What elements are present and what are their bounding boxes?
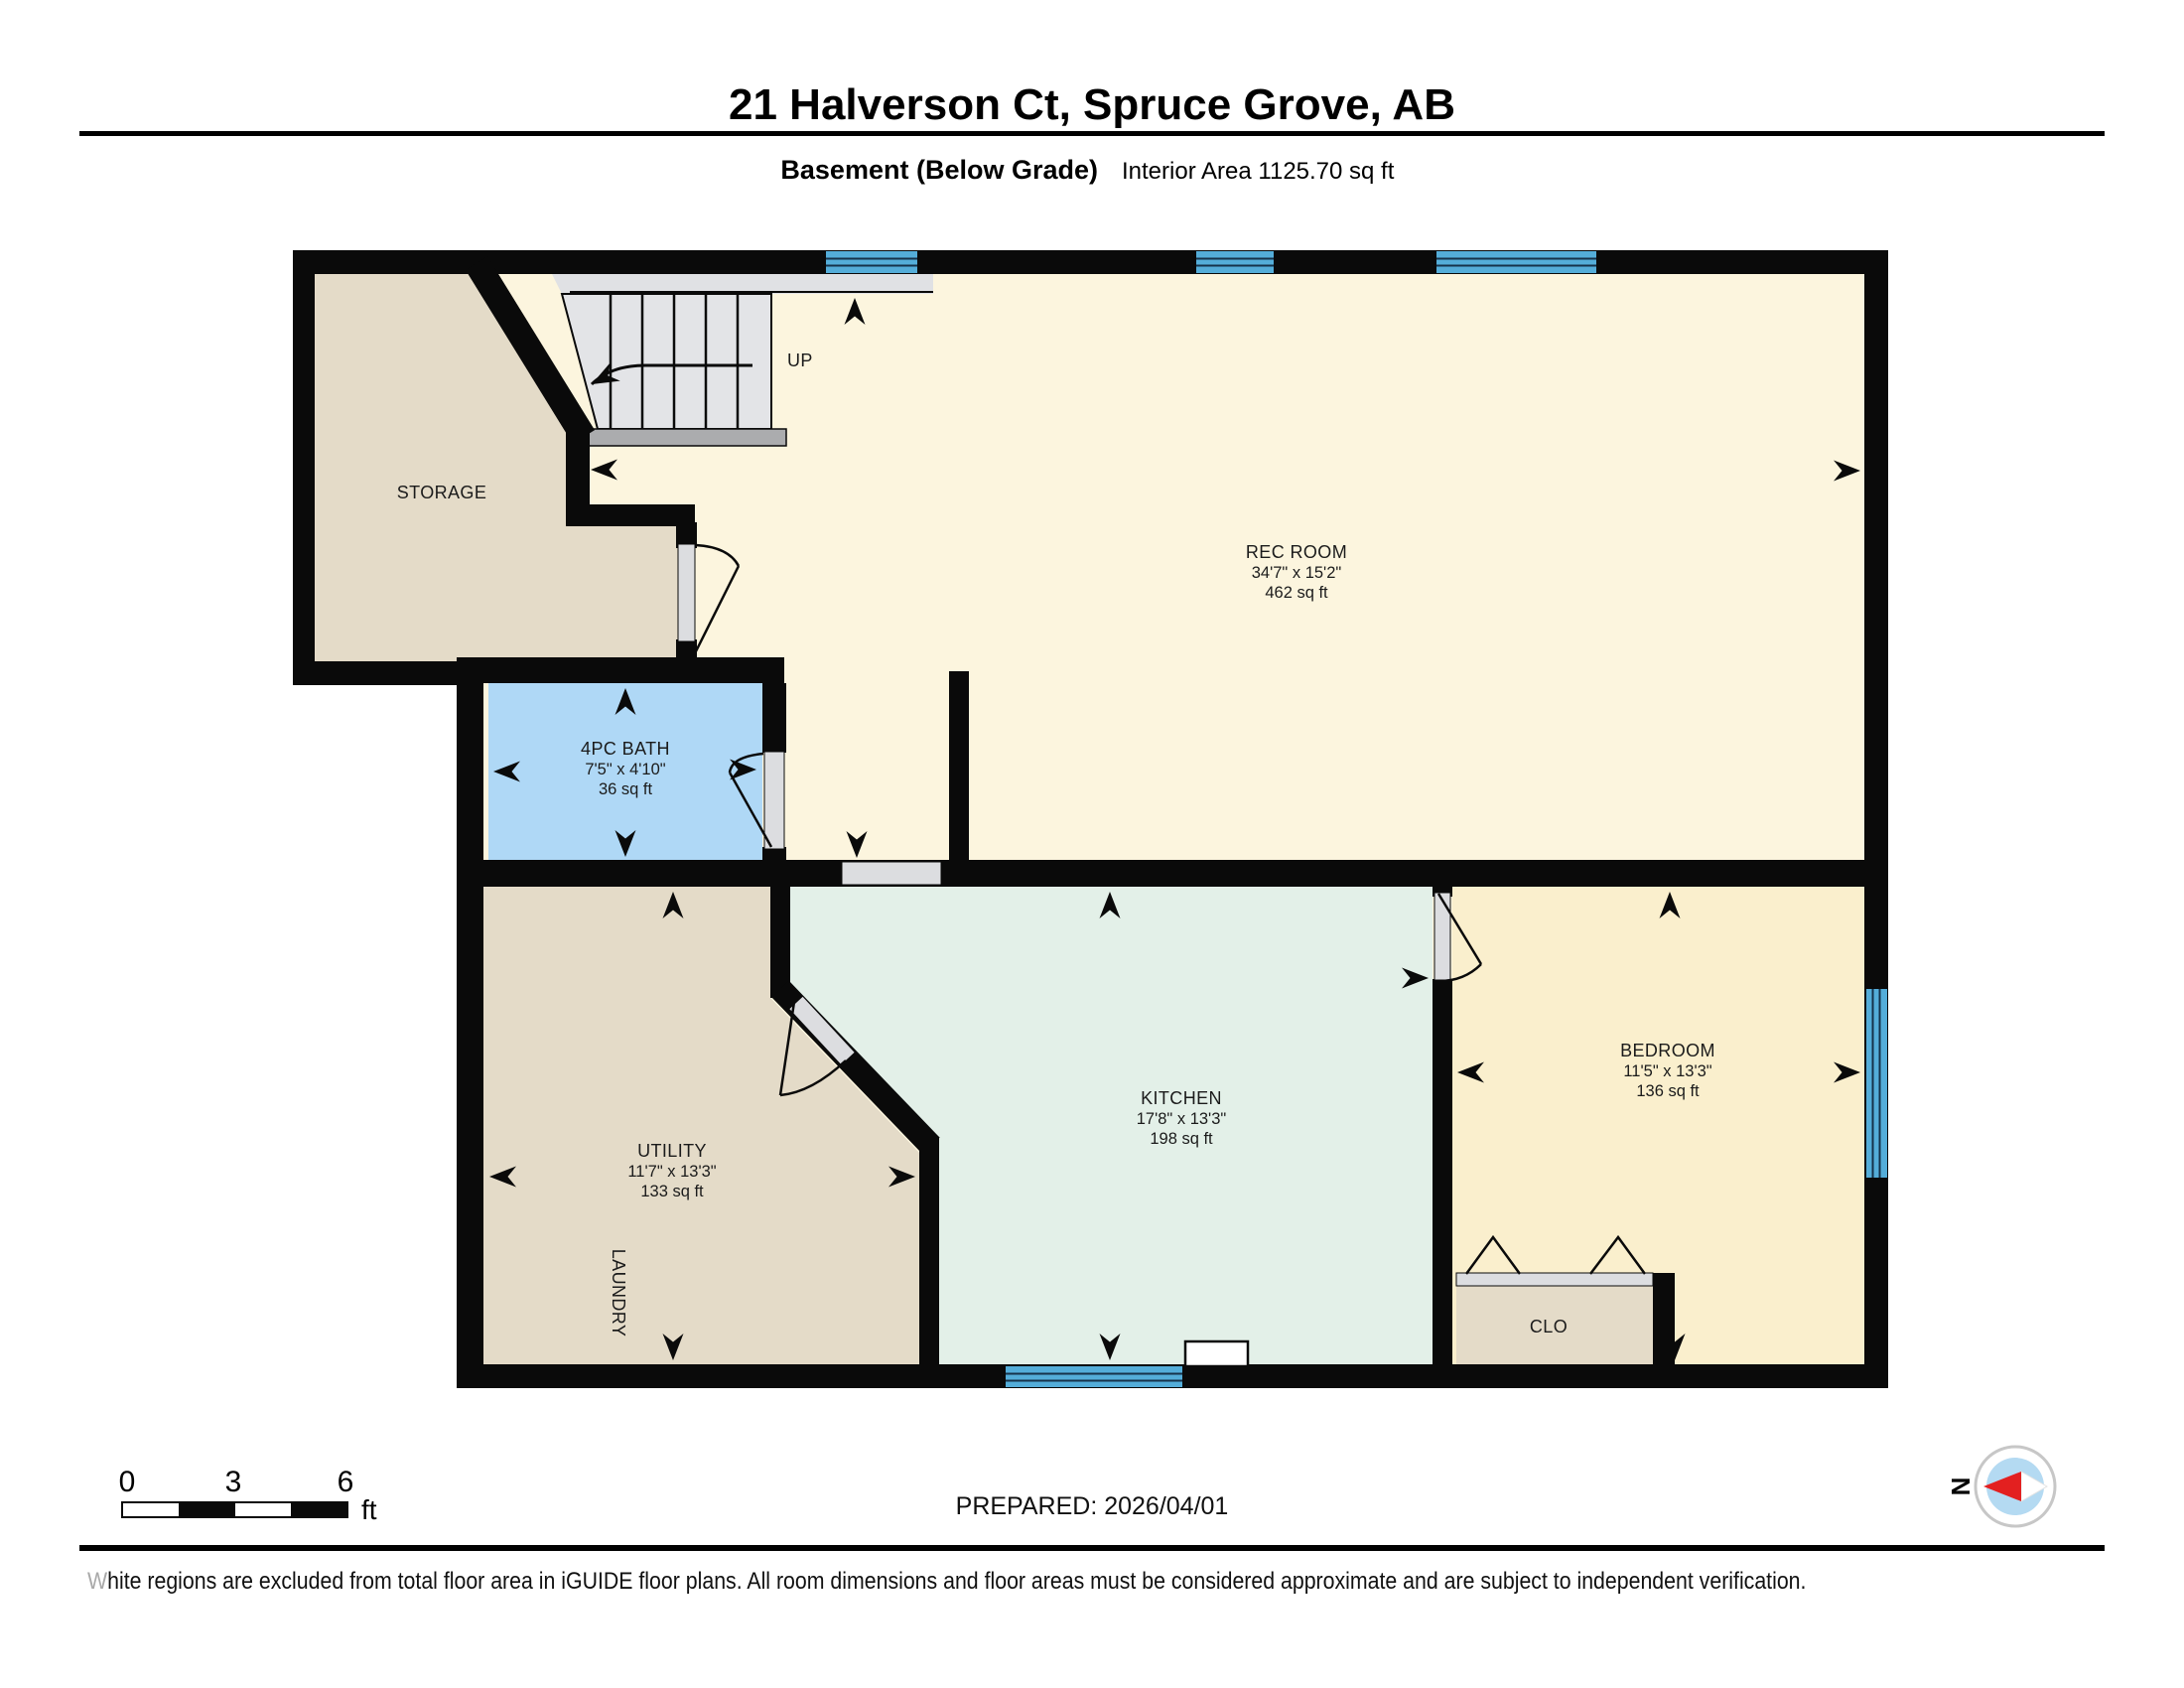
laundry-label: LAUNDRY	[609, 1249, 628, 1337]
wall-bath-top	[457, 657, 784, 683]
bedroom-door-opening	[1434, 893, 1450, 980]
bedroom-area: 136 sq ft	[1636, 1082, 1700, 1100]
rec-room-area: 462 sq ft	[1265, 584, 1328, 602]
bedroom-dims: 11'5" x 13'3"	[1623, 1062, 1711, 1080]
utility-name: UTILITY	[637, 1141, 707, 1161]
compass: N	[1946, 1447, 2055, 1526]
wall-bath-right-upper	[762, 683, 786, 753]
utility-dims: 11'7" x 13'3"	[627, 1163, 716, 1181]
window-top-1	[826, 251, 917, 273]
wall-left-lower	[457, 661, 483, 1388]
wall-utility-right-upper	[770, 887, 790, 998]
window-bedroom-right	[1866, 989, 1887, 1178]
wall-left-upper	[293, 250, 315, 685]
wall-top	[293, 250, 1888, 274]
wall-rec-stub	[949, 671, 969, 866]
stair-body	[562, 294, 771, 429]
stairs-up-label: UP	[787, 351, 813, 370]
bedroom-name: BEDROOM	[1620, 1041, 1715, 1060]
rec-room-dims: 34'7" x 15'2"	[1252, 564, 1342, 582]
wall-hall-horizontal	[566, 504, 695, 526]
scale-bar: 0 3 6 ft	[119, 1466, 377, 1525]
interior-area-label: Interior Area 1125.70 sq ft	[1122, 158, 1395, 185]
window-kitchen-bottom	[1006, 1366, 1182, 1387]
footer-rule	[79, 1545, 2105, 1551]
bath-door-opening	[764, 752, 784, 849]
page-title: 21 Halverson Ct, Spruce Grove, AB	[729, 80, 1455, 129]
floor-plan-canvas: 21 Halverson Ct, Spruce Grove, AB Baseme…	[0, 0, 2184, 1688]
kitchen-name: KITCHEN	[1141, 1088, 1222, 1108]
closet-label: CLO	[1530, 1317, 1568, 1336]
wall-utility-right-lower	[919, 1138, 939, 1364]
prepared-date: PREPARED: 2026/04/01	[956, 1492, 1229, 1520]
utility-area: 133 sq ft	[640, 1183, 704, 1200]
storage-door-opening	[678, 544, 695, 641]
kitchen-bumpout-box	[1185, 1341, 1248, 1366]
scale-tick-0: 0	[119, 1466, 136, 1498]
rec-kitchen-opening	[842, 862, 941, 885]
scale-bar-segment	[291, 1502, 347, 1517]
room-fills	[305, 260, 1876, 1376]
stair-lower-landing	[584, 429, 786, 446]
kitchen-dims: 17'8" x 13'3"	[1137, 1110, 1227, 1128]
kitchen-area: 198 sq ft	[1150, 1130, 1213, 1148]
scale-bar-segment	[179, 1502, 235, 1517]
header-rule	[79, 131, 2105, 136]
disclaimer-body: hite regions are excluded from total flo…	[107, 1567, 1806, 1595]
scale-tick-6: 6	[338, 1466, 354, 1498]
storage-label: STORAGE	[397, 483, 487, 502]
floor-label: Basement (Below Grade)	[780, 155, 1098, 185]
bath-name: 4PC BATH	[581, 739, 670, 759]
rec-room-name: REC ROOM	[1246, 542, 1347, 562]
scale-unit-label: ft	[361, 1494, 377, 1525]
disclaimer-lead-letter: W	[87, 1567, 107, 1595]
window-top-3	[1436, 251, 1596, 273]
bath-dims: 7'5" x 4'10"	[585, 761, 665, 778]
disclaimer-text: White regions are excluded from total fl…	[87, 1567, 1806, 1595]
scale-tick-3: 3	[225, 1466, 242, 1498]
wall-kitchen-bedroom-divider	[1433, 979, 1452, 1364]
wall-mid-horizontal	[457, 860, 1864, 887]
wall-storage-bottom	[293, 661, 483, 685]
closet-track	[1456, 1273, 1653, 1286]
window-top-2	[1196, 251, 1274, 273]
north-label: N	[1946, 1477, 1976, 1496]
bath-area: 36 sq ft	[599, 780, 653, 798]
wall-right	[1864, 250, 1888, 1388]
